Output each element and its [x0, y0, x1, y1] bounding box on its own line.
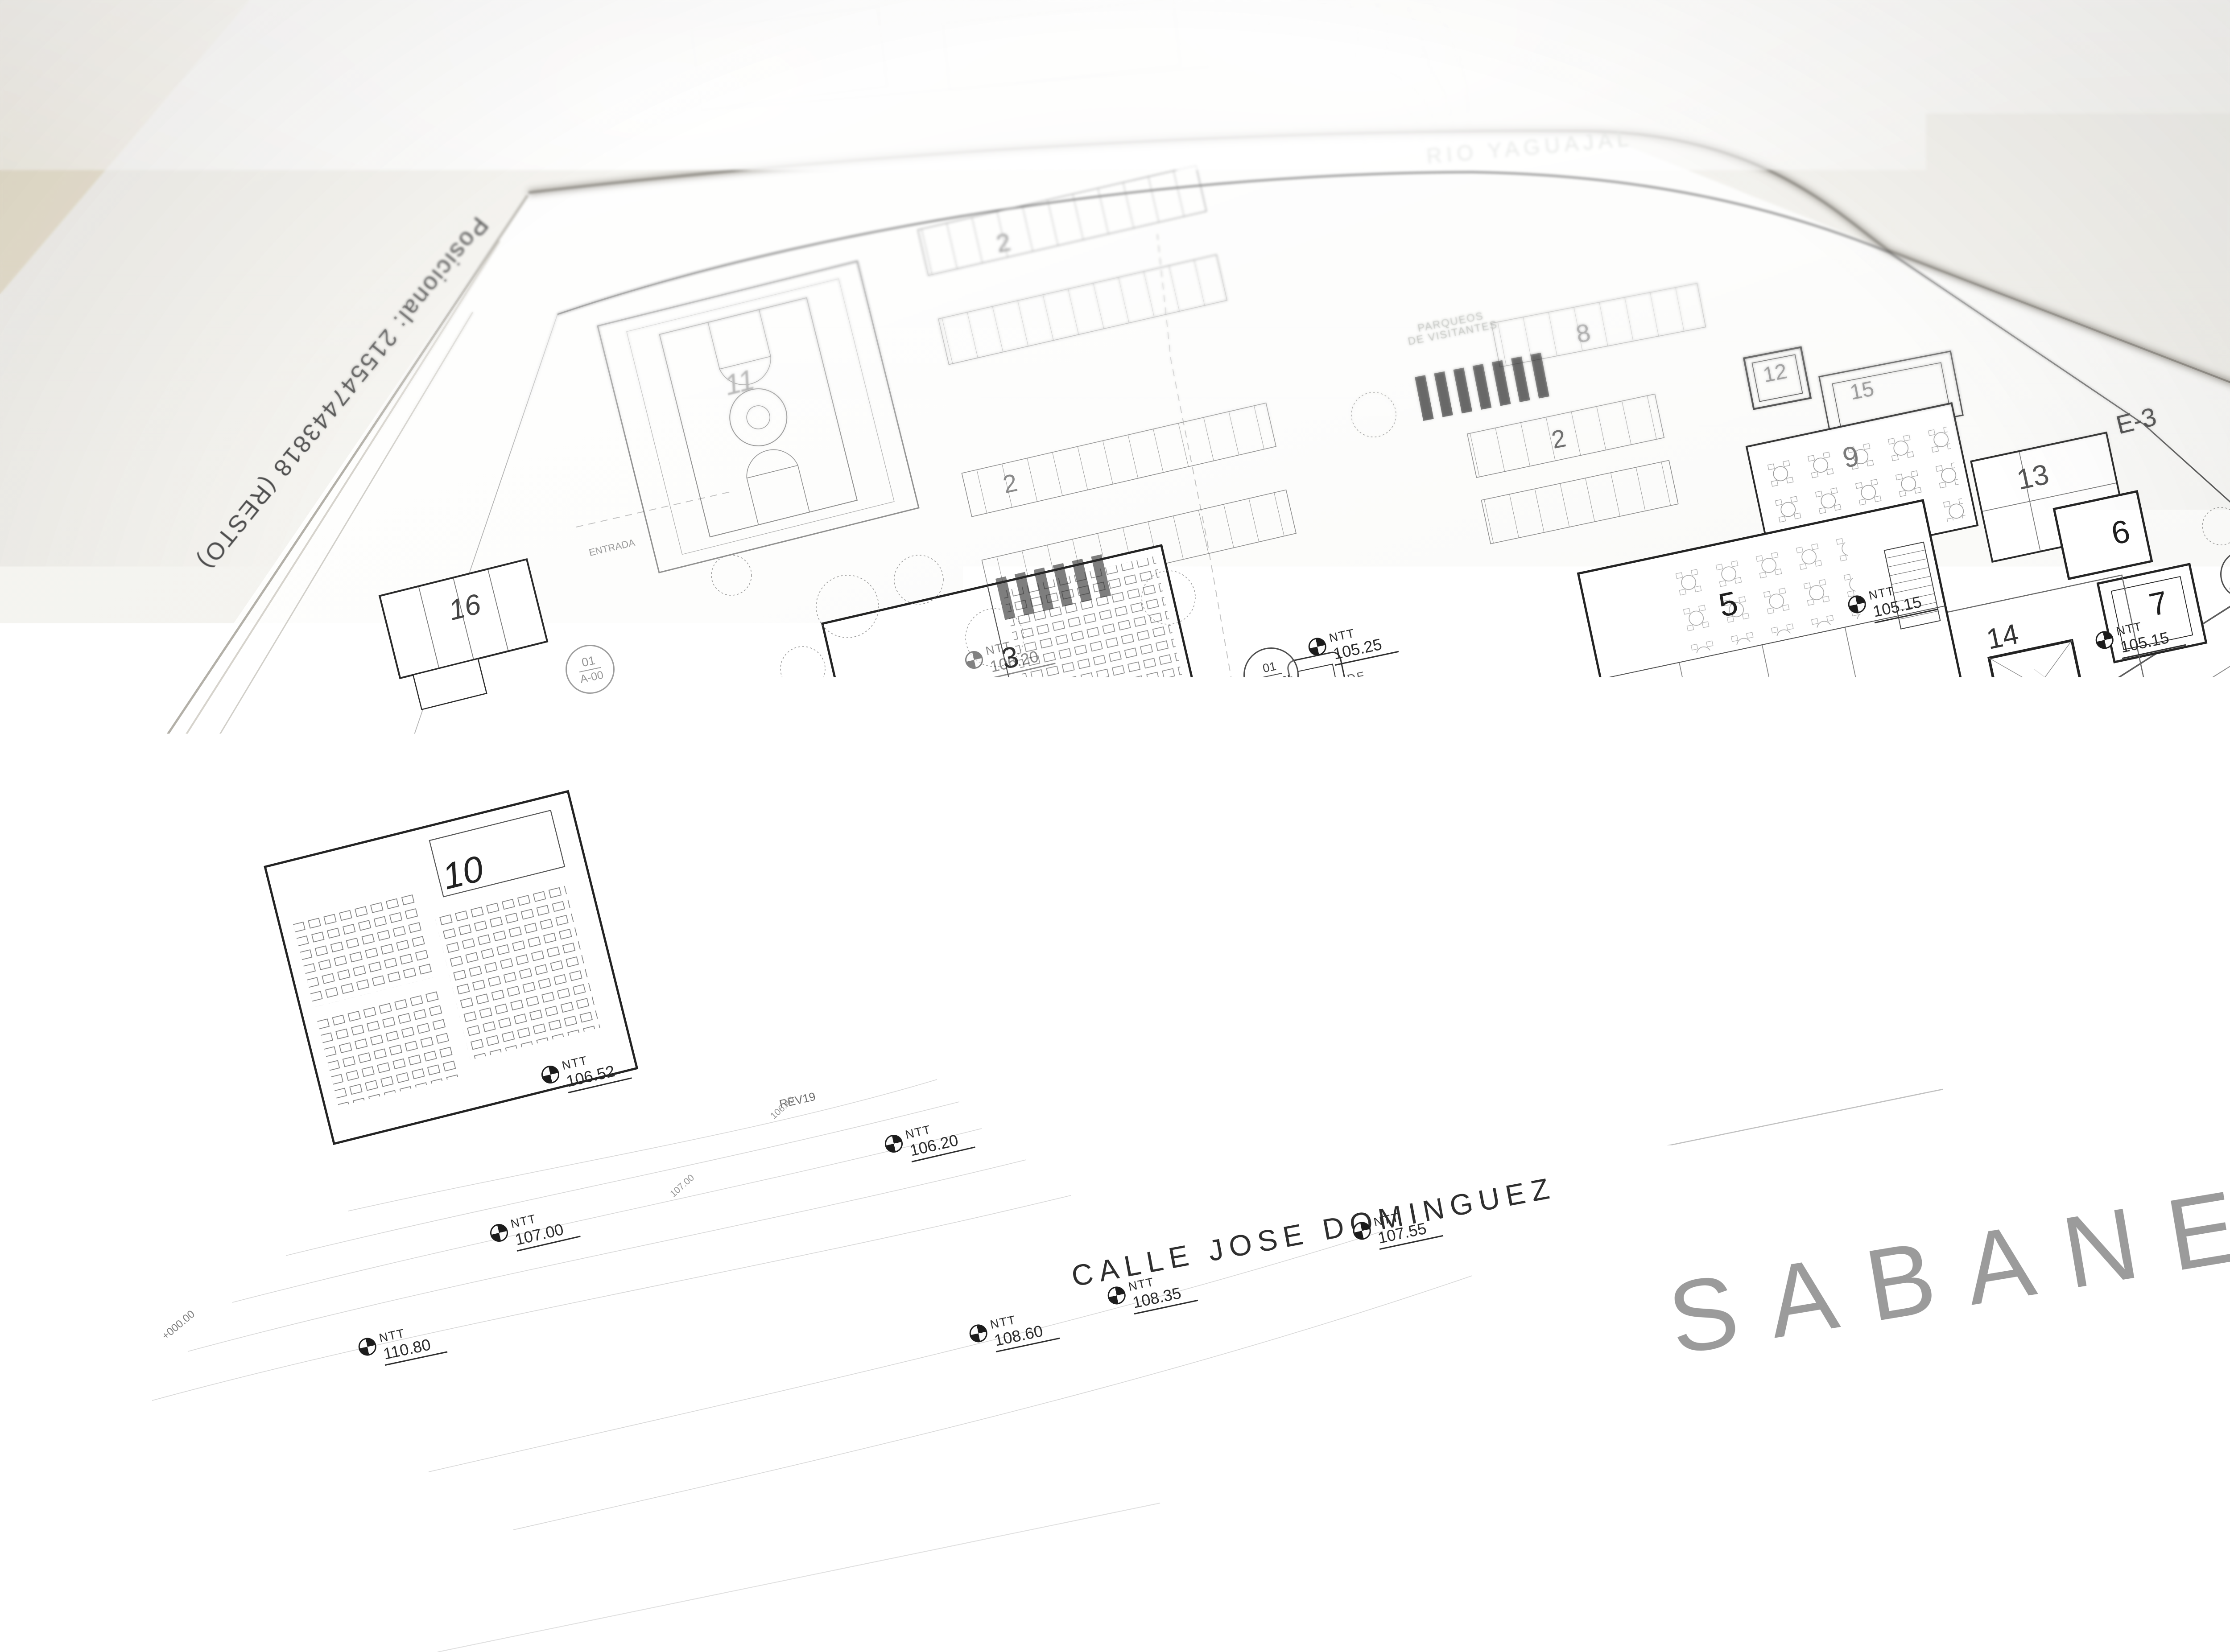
benchmark-icon — [1452, 886, 1473, 907]
benchmark-icon — [1307, 636, 1328, 657]
benchmark-icon — [1467, 830, 1488, 851]
bubble-sheet: A-500d — [2227, 572, 2230, 593]
benchmark-icon — [1200, 882, 1221, 902]
benchmark-icon — [622, 941, 644, 963]
building-number-label: 13 — [2014, 459, 2052, 495]
benchmark-icon — [573, 754, 595, 775]
photo-of-site-plan: { "scene": { "desk_color": "#ece6d8", "s… — [0, 0, 2230, 1652]
benchmark-icon — [488, 1222, 510, 1244]
benchmark-icon — [1351, 1220, 1372, 1241]
benchmark-icon — [357, 1336, 378, 1357]
benchmark-icon — [2094, 630, 2115, 651]
benchmark-icon — [540, 1064, 561, 1085]
benchmark-icon — [1898, 752, 1919, 773]
benchmark-icon — [883, 1133, 904, 1154]
benchmark-icon — [698, 698, 719, 720]
benchmark-icon — [1846, 594, 1867, 615]
benchmark-icon — [1204, 708, 1225, 729]
building-number-label: 12 — [1761, 360, 1789, 387]
building-number-label: 14 — [1984, 619, 2021, 655]
benchmark-icon — [2136, 757, 2157, 778]
building-number-label: 15 — [1848, 378, 1876, 404]
benchmark-icon — [963, 649, 985, 671]
benchmark-icon — [1632, 922, 1653, 943]
benchmark-icon — [1773, 708, 1794, 729]
benchmark-icon — [905, 946, 927, 967]
benchmark-icon — [1106, 1285, 1127, 1306]
site-plan-linework — [0, 0, 2230, 1652]
benchmark-icon — [968, 1323, 989, 1344]
benchmark-icon — [1061, 1008, 1083, 1030]
